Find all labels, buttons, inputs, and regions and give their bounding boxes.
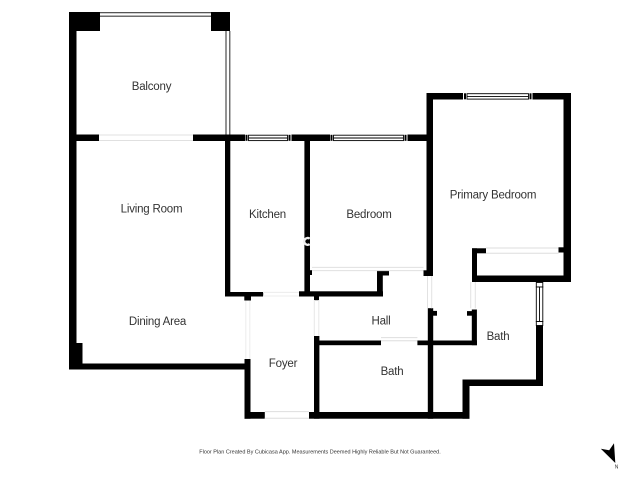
svg-text:Primary Bedroom: Primary Bedroom [450,190,536,202]
svg-text:Bedroom: Bedroom [346,209,391,221]
svg-text:Kitchen: Kitchen [249,209,286,221]
svg-text:Living Room: Living Room [121,204,183,216]
svg-text:N: N [615,465,619,471]
svg-text:Floor Plan Created By Cubicasa: Floor Plan Created By Cubicasa App. Meas… [199,450,441,456]
svg-text:Bath: Bath [381,366,404,378]
svg-text:Dining Area: Dining Area [129,316,187,328]
svg-text:Hall: Hall [371,316,390,328]
svg-text:Balcony: Balcony [132,81,172,93]
svg-text:Bath: Bath [487,331,510,343]
svg-text:Foyer: Foyer [269,358,298,370]
